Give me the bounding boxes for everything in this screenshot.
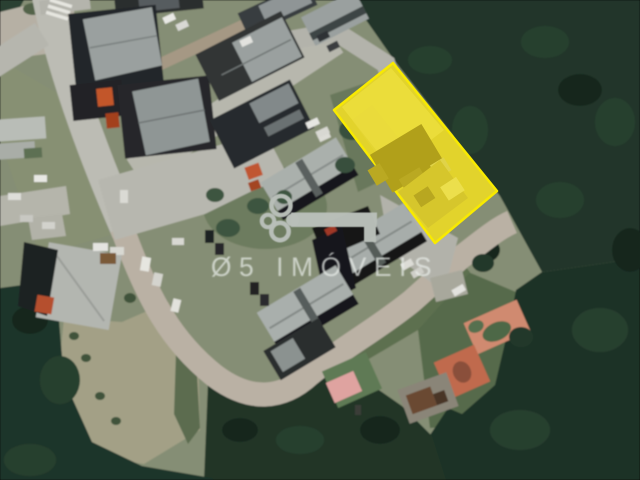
svg-text:Ø5 IMÓVEIS: Ø5 IMÓVEIS	[211, 252, 439, 282]
